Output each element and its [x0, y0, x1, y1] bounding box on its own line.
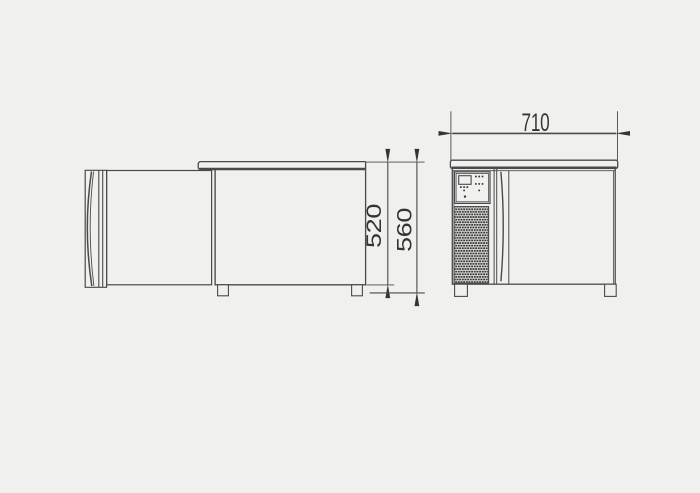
button-dot: [463, 186, 465, 188]
button-dot: [482, 183, 484, 185]
button-dot: [475, 176, 477, 178]
button-dot: [482, 176, 484, 178]
control-panel-outer-frame: [455, 172, 491, 204]
dim-label-520: 520: [363, 204, 386, 248]
side-door-gasket-curve-outer: [87, 172, 91, 287]
button-dot: [460, 186, 462, 188]
button-dot: [464, 195, 466, 197]
button-dot: [478, 176, 480, 178]
side-foot-right: [352, 285, 363, 296]
control-panel: [455, 172, 491, 204]
dimension-front-width-710: 710: [451, 109, 618, 160]
button-dot: [463, 189, 465, 191]
side-door-gasket-curve-inner: [90, 172, 94, 287]
ventilation-grille: [454, 207, 489, 284]
button-dot: [466, 186, 468, 188]
dim-label-710: 710: [522, 109, 550, 137]
technical-drawing-page: 520 560 710: [0, 0, 700, 493]
front-foot-right: [605, 284, 617, 296]
side-view: [85, 162, 365, 296]
front-door-gasket-curve: [501, 172, 503, 281]
side-foot-left: [218, 285, 229, 296]
button-dot: [478, 183, 480, 185]
dim-label-560: 560: [394, 208, 417, 252]
control-display: [459, 176, 471, 185]
side-door-panel: [85, 170, 106, 287]
control-buttons: [460, 176, 484, 198]
front-view: [450, 160, 617, 296]
button-dot: [478, 189, 480, 191]
button-dot: [475, 183, 477, 185]
drawing-canvas: 520 560 710: [0, 0, 700, 493]
side-cabinet-body: [215, 162, 366, 285]
side-door-frame: [107, 171, 212, 285]
front-foot-left: [455, 284, 468, 296]
